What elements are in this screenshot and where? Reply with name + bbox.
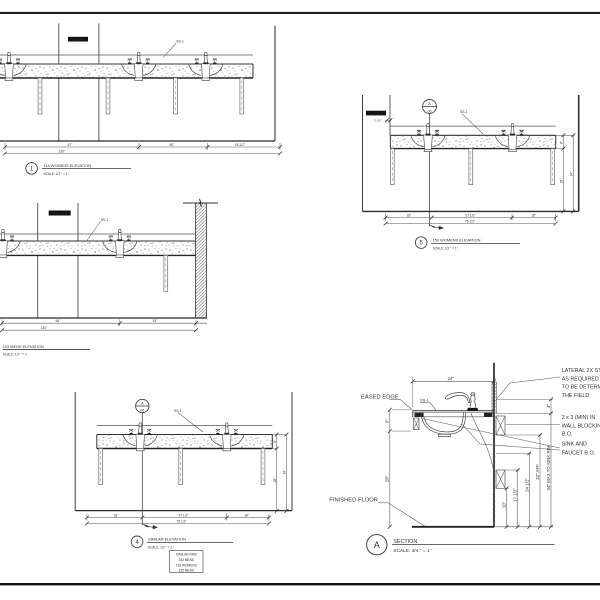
svg-text:06: 06 [427,109,431,113]
svg-text:150": 150" [59,150,65,154]
svg-text:SS-1: SS-1 [174,409,182,413]
svg-text:WALL BLOCKING: WALL BLOCKING [562,423,600,429]
svg-text:COLUMN: COLUMN [369,112,383,116]
svg-text:18": 18" [244,514,249,518]
svg-text:SCALE: 1/2 " = 1 ': SCALE: 1/2 " = 1 ' [433,247,459,251]
svg-text:THE FIELD: THE FIELD [562,393,590,399]
svg-text:A: A [374,540,381,550]
svg-text:AS REQUIRED: AS REQUIRED [562,376,599,382]
svg-text:57 1/2": 57 1/2" [466,214,476,218]
svg-text:2 1/2": 2 1/2" [374,119,382,123]
svg-text:34" MAX TO SINK RIM: 34" MAX TO SINK RIM [546,445,551,490]
svg-text:SCALE: 1/2 " = 1 ': SCALE: 1/2 " = 1 ' [148,545,174,549]
svg-text:SS-1: SS-1 [101,218,109,222]
svg-text:SS-1: SS-1 [420,397,430,402]
svg-text:06: 06 [140,409,144,413]
svg-text:COLUMN: COLUMN [71,38,86,42]
svg-text:SS-1: SS-1 [460,110,468,114]
svg-text:28": 28" [560,179,564,184]
svg-text:6": 6" [273,440,277,443]
svg-text:64": 64" [56,319,61,323]
svg-text:75 1/2": 75 1/2" [465,220,475,224]
svg-text:153 WOMENS: 153 WOMENS [176,563,197,567]
svg-text:114 WOMENS ELEVATION: 114 WOMENS ELEVATION [44,163,92,168]
svg-text:37 1/2": 37 1/2" [179,514,189,518]
svg-text:53": 53" [153,319,158,323]
svg-text:24 1/2": 24 1/2" [524,478,529,492]
svg-text:10": 10" [502,501,507,508]
svg-text:SS-1: SS-1 [176,40,184,44]
svg-text:28": 28" [385,475,390,482]
svg-text:SECTION: SECTION [393,539,417,545]
svg-text:75 1/2": 75 1/2" [177,520,187,524]
svg-text:18": 18" [114,514,119,518]
svg-text:18": 18" [407,214,412,218]
svg-text:6": 6" [385,419,390,423]
svg-text:67": 67" [68,143,73,147]
svg-text:130": 130" [41,326,47,330]
svg-text:34": 34" [570,172,574,177]
svg-text:150 WOMENS ELEVATION: 150 WOMENS ELEVATION [433,238,481,243]
svg-text:SIMILAR ELEVATION: SIMILAR ELEVATION [148,537,186,542]
svg-text:COLUMN: COLUMN [52,212,67,216]
svg-text:6": 6" [560,141,564,144]
svg-text:32" AFF: 32" AFF [535,464,540,480]
svg-text:4": 4" [546,404,551,408]
svg-text:50": 50" [170,143,175,147]
svg-text:34": 34" [283,470,287,475]
svg-text:SINK AND: SINK AND [562,441,587,447]
svg-text:28": 28" [273,478,277,483]
svg-text:TO BE DETERMINED: TO BE DETERMINED [562,385,600,391]
svg-text:17 1/2": 17 1/2" [513,488,518,502]
svg-text:SCALE: 1/2 " = 1 ': SCALE: 1/2 " = 1 ' [3,353,29,357]
svg-text:SCALE: 3/4 " = 1 ': SCALE: 3/4 " = 1 ' [393,548,432,554]
svg-text:SIMILAR RMS: SIMILAR RMS [176,553,197,557]
svg-text:24": 24" [447,376,454,381]
svg-text:LATERAL 2X STUDS: LATERAL 2X STUDS [562,368,600,374]
svg-text:18 1/2": 18 1/2" [235,143,245,147]
svg-text:103 MENS ELEVATION: 103 MENS ELEVATION [3,344,44,349]
svg-text:155 MENS: 155 MENS [179,569,194,573]
svg-text:2 x 3 (MIN) IN: 2 x 3 (MIN) IN [562,415,596,421]
svg-text:FINISHED FLOOR: FINISHED FLOOR [329,498,378,504]
svg-text:18": 18" [531,214,536,218]
svg-text:B.O.: B.O. [562,432,573,438]
svg-text:SCALE: 1/2 " = 1 ': SCALE: 1/2 " = 1 ' [44,172,70,176]
svg-text:FAUCET B.O.: FAUCET B.O. [562,451,595,457]
svg-text:152 MENS: 152 MENS [179,558,194,562]
